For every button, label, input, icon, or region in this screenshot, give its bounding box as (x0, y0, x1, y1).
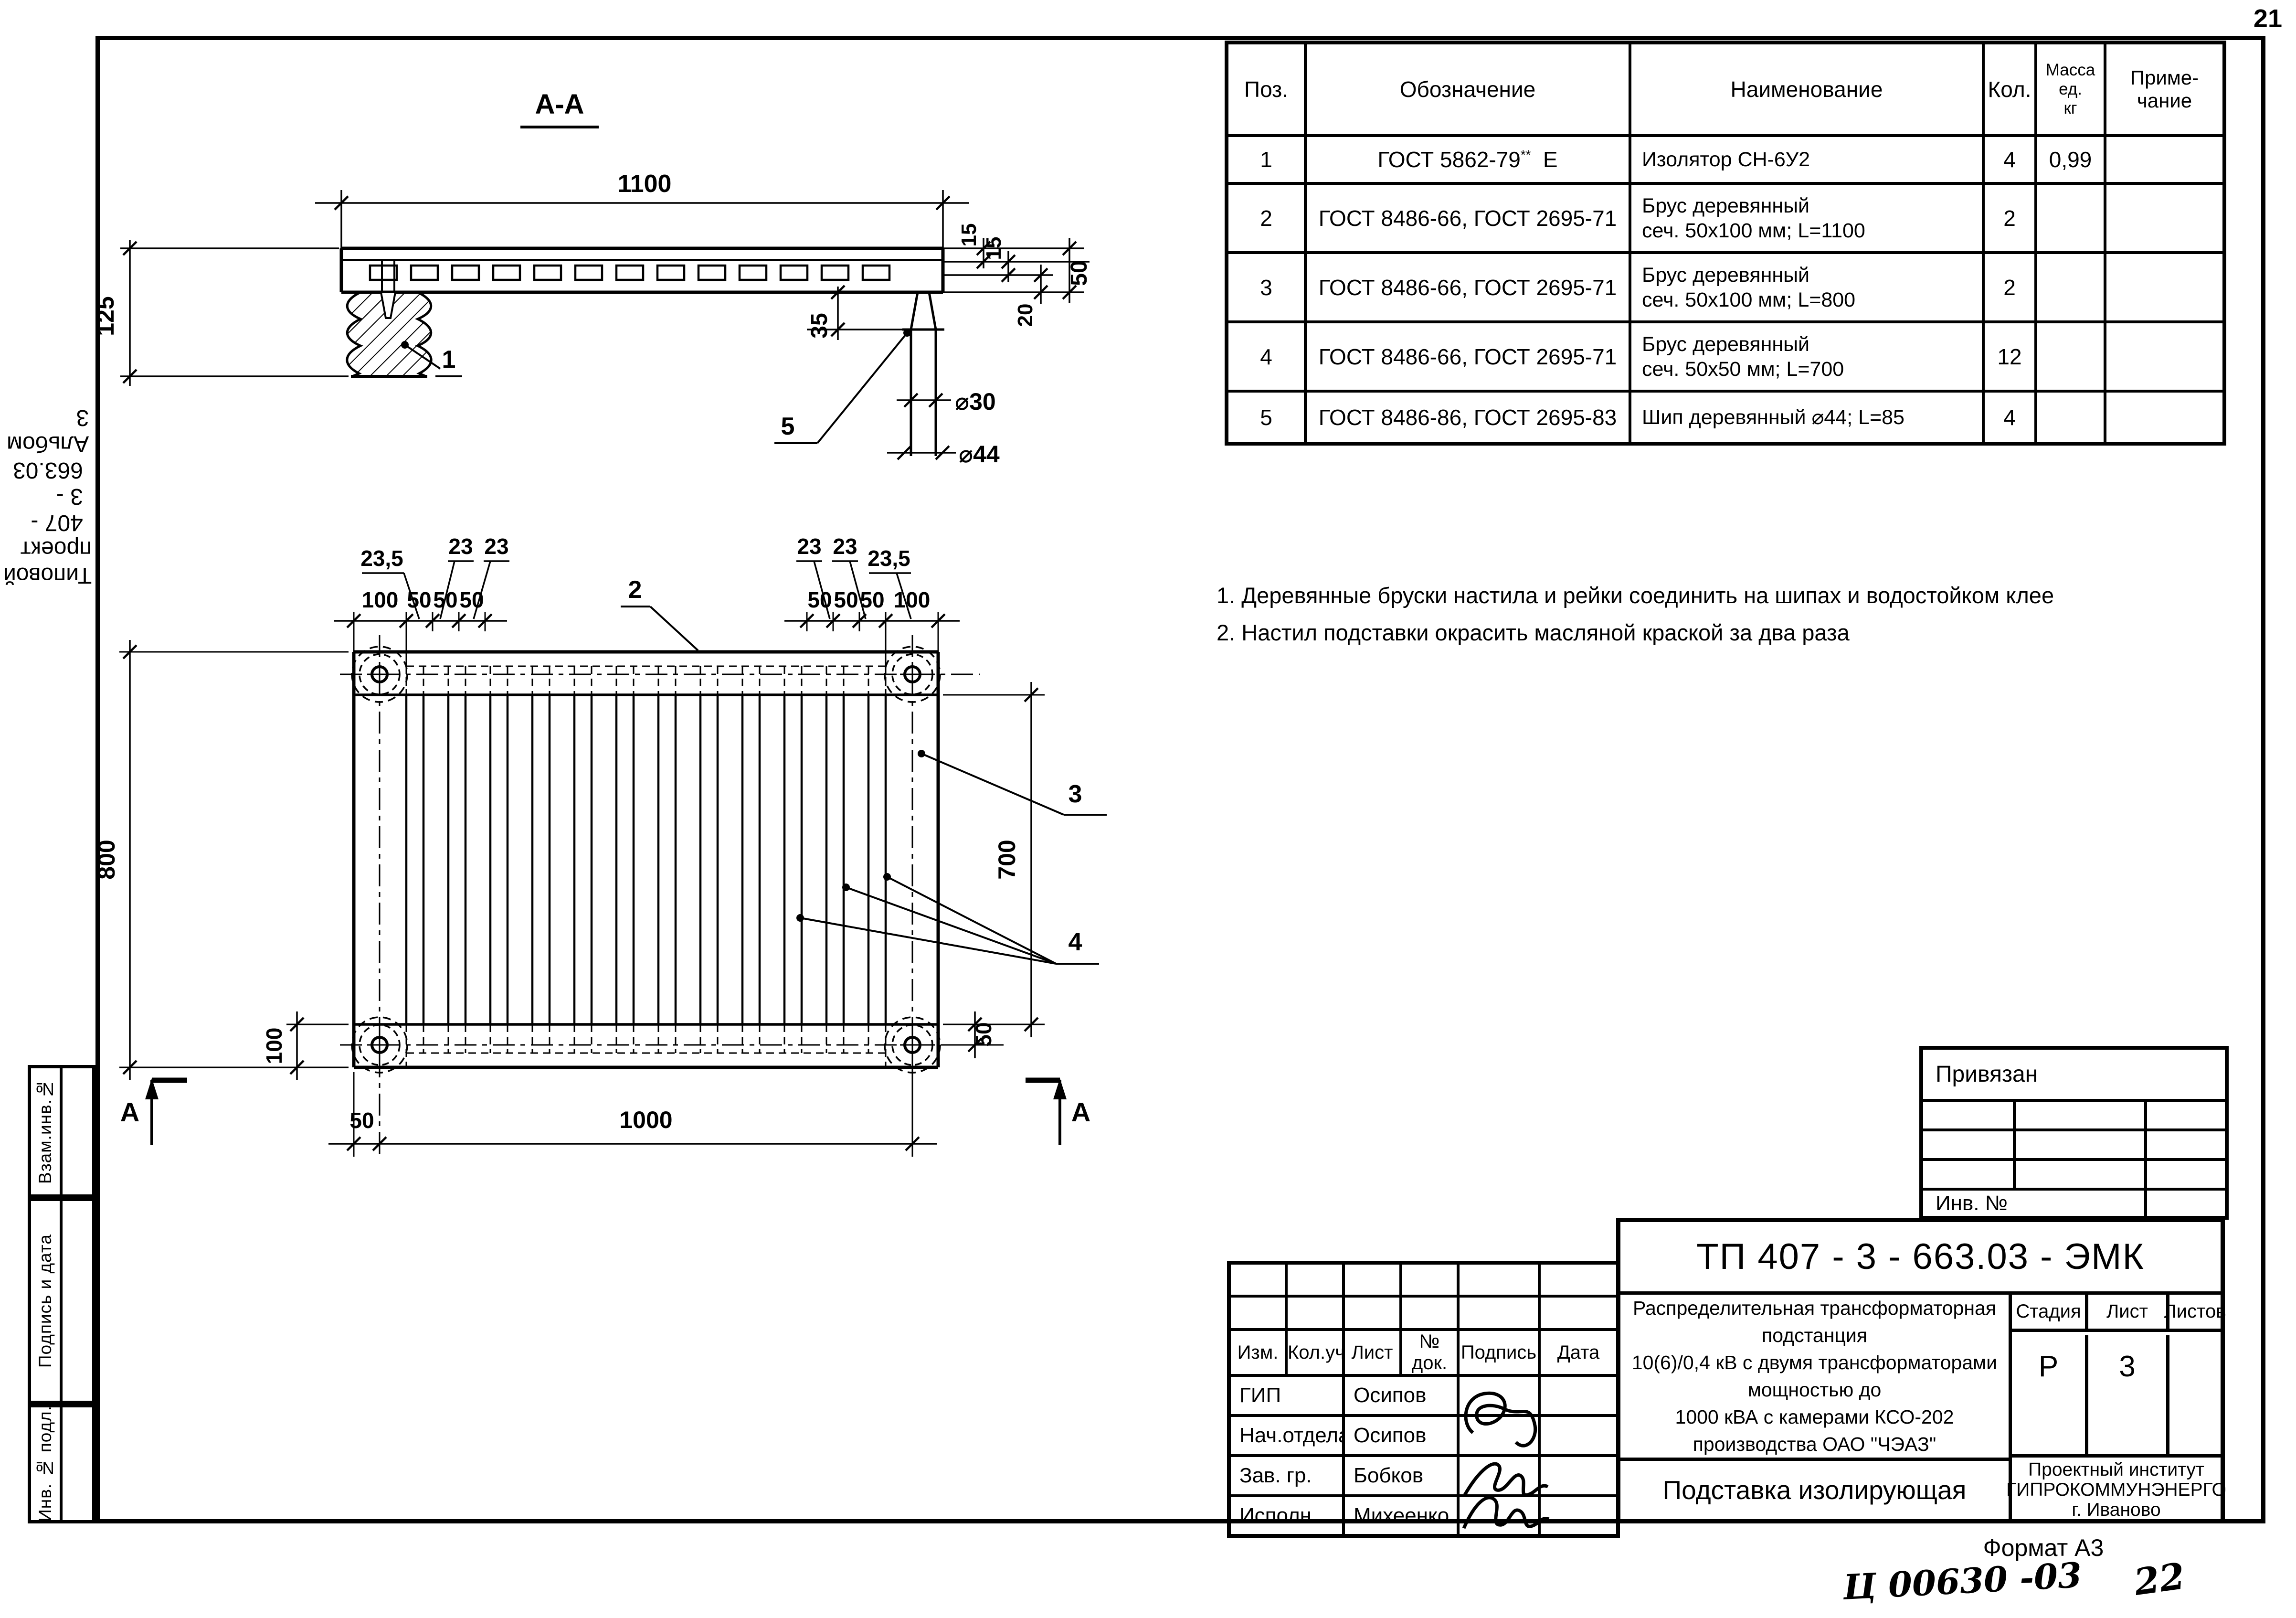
svg-text:А: А (1071, 1097, 1090, 1127)
svg-text:125: 125 (92, 296, 119, 336)
svg-text:1100: 1100 (618, 170, 672, 198)
svg-text:23: 23 (797, 534, 821, 559)
svg-text:35: 35 (807, 313, 832, 338)
svg-text:3: 3 (1069, 780, 1082, 808)
svg-text:50: 50 (459, 587, 484, 612)
svg-text:50: 50 (1067, 260, 1092, 286)
svg-text:50: 50 (349, 1108, 374, 1133)
svg-text:50: 50 (971, 1022, 996, 1046)
svg-text:23: 23 (833, 534, 857, 559)
svg-text:⌀30: ⌀30 (955, 388, 996, 415)
svg-text:23: 23 (484, 534, 508, 559)
drawing-sheet: 21 Типовой проект 407 - 3 - 663.03 Альбо… (0, 0, 2296, 1618)
svg-text:100: 100 (894, 587, 931, 612)
svg-text:15: 15 (982, 237, 1005, 260)
svg-text:20: 20 (1014, 304, 1037, 327)
svg-text:⌀44: ⌀44 (959, 441, 1000, 468)
svg-text:700: 700 (994, 840, 1020, 879)
svg-text:4: 4 (1069, 928, 1082, 956)
svg-text:23,5: 23,5 (868, 546, 910, 571)
svg-text:23: 23 (448, 534, 473, 559)
svg-text:50: 50 (807, 587, 832, 612)
svg-text:50: 50 (834, 587, 858, 612)
svg-text:2: 2 (628, 576, 642, 604)
svg-text:800: 800 (93, 840, 120, 879)
svg-text:А: А (120, 1097, 139, 1127)
svg-text:5: 5 (781, 413, 795, 440)
svg-text:15: 15 (957, 224, 981, 247)
svg-text:А-А: А-А (535, 89, 584, 120)
technical-drawing-canvas: А-А11001515502035⌀30⌀445112510050505023,… (0, 0, 2296, 1618)
svg-text:1000: 1000 (619, 1107, 672, 1133)
svg-text:23,5: 23,5 (360, 546, 403, 571)
svg-text:100: 100 (362, 587, 399, 612)
svg-text:1: 1 (442, 346, 456, 373)
svg-text:50: 50 (860, 587, 884, 612)
svg-text:100: 100 (262, 1028, 286, 1064)
